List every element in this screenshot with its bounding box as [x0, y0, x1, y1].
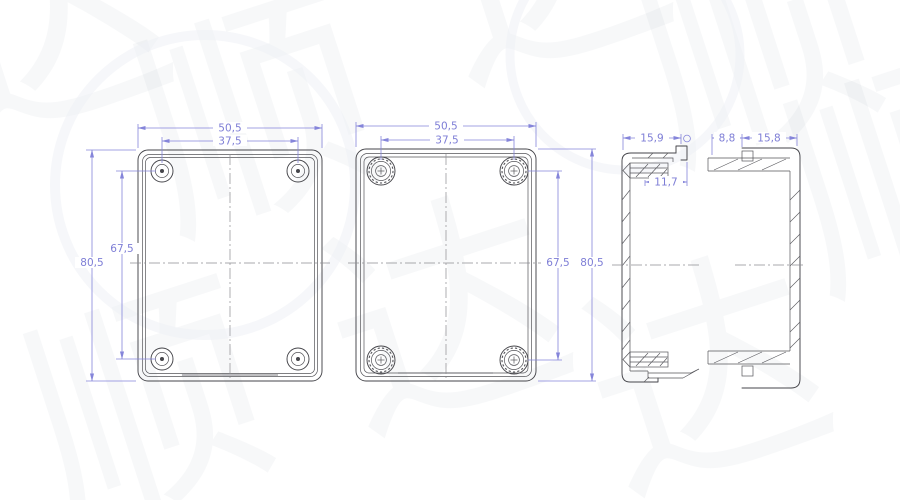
watermark-swoosh [55, 0, 740, 335]
dimension-hole-span-y: 67,5 [528, 171, 575, 360]
dimension-height: 80,5 [75, 150, 136, 381]
dim-label: 67,5 [110, 243, 133, 255]
dim-label: 50,5 [434, 121, 457, 133]
dim-label: 11,7 [654, 177, 677, 189]
drawing-canvas: 达 顺 达 顺 达 顺 达 顺 [0, 0, 900, 500]
dim-label: 15,8 [757, 133, 780, 145]
dim-label: 37,5 [435, 135, 458, 147]
lid-view: 50,5 37,5 80,5 67,5 [75, 122, 330, 381]
dimension-hole-span-x: 37,5 [381, 134, 514, 160]
section-hatch [790, 190, 800, 348]
dimension-body-depth: 15,9 [623, 132, 690, 150]
section-lid-profile [708, 148, 806, 388]
dim-label: 80,5 [580, 257, 603, 269]
dim-label: 15,9 [640, 133, 663, 145]
screw-boss [500, 346, 528, 374]
bottom-flange [708, 351, 790, 364]
screw-hole [287, 348, 309, 370]
dim-label: 37,5 [218, 136, 241, 148]
screw-boss [500, 157, 528, 185]
screw-boss [367, 157, 395, 185]
dim-label: 50,5 [218, 123, 241, 135]
bottom-lip [648, 369, 699, 378]
screw-hole [287, 160, 309, 182]
boss-post [742, 151, 753, 161]
dim-label: 8,8 [719, 133, 736, 145]
dimension-lid-depth: 15,8 [742, 132, 797, 146]
dimension-lid-lip: 8,8 [712, 132, 742, 155]
top-flange [708, 158, 790, 171]
lid-inner-edge [146, 158, 315, 374]
dimension-hole-span-y: 67,5 [105, 171, 156, 359]
dim-label: 80,5 [80, 257, 103, 269]
hole-symbol [684, 135, 691, 142]
boss-section [623, 352, 668, 367]
screw-boss [367, 346, 395, 374]
boss-post [742, 366, 753, 376]
dim-label: 67,5 [546, 257, 569, 269]
drawing-svg: 50,5 37,5 80,5 67,5 [0, 0, 900, 500]
